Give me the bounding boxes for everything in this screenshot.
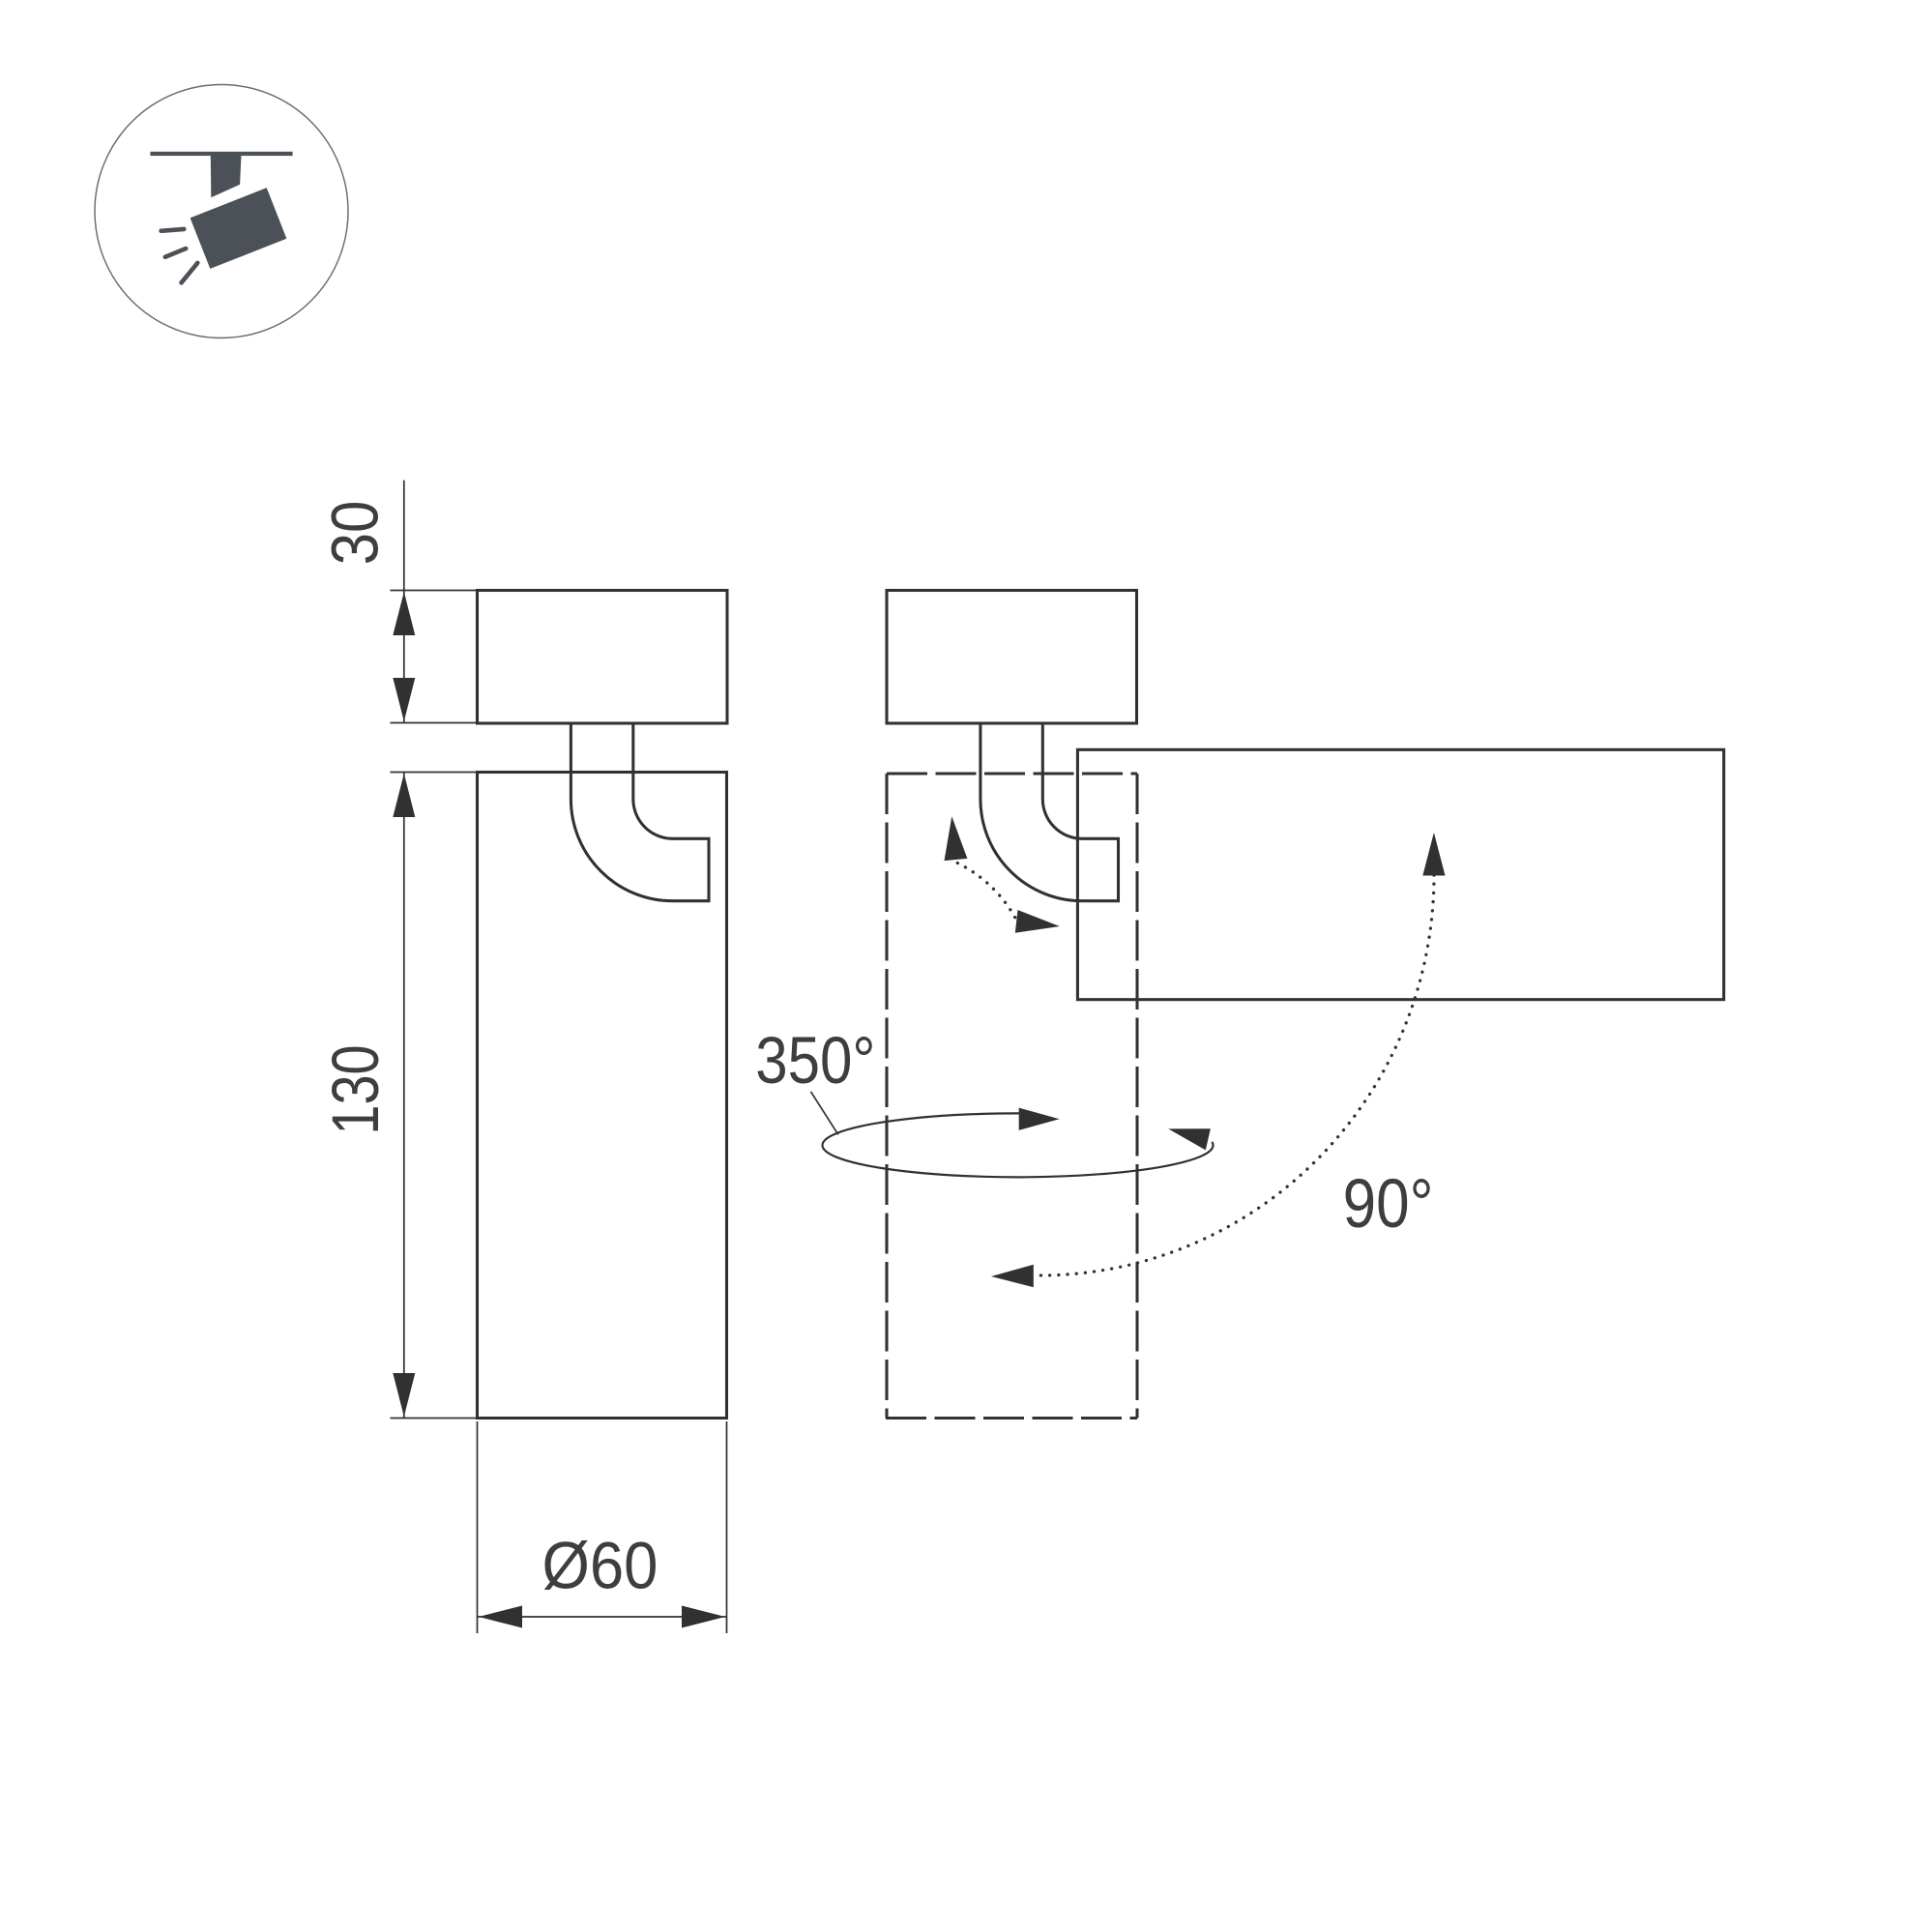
svg-text:30: 30 — [316, 501, 392, 566]
svg-text:90°: 90° — [1343, 1165, 1434, 1243]
svg-text:130: 130 — [319, 1044, 394, 1134]
svg-text:Ø60: Ø60 — [542, 1529, 659, 1603]
svg-text:350°: 350° — [755, 1022, 875, 1098]
